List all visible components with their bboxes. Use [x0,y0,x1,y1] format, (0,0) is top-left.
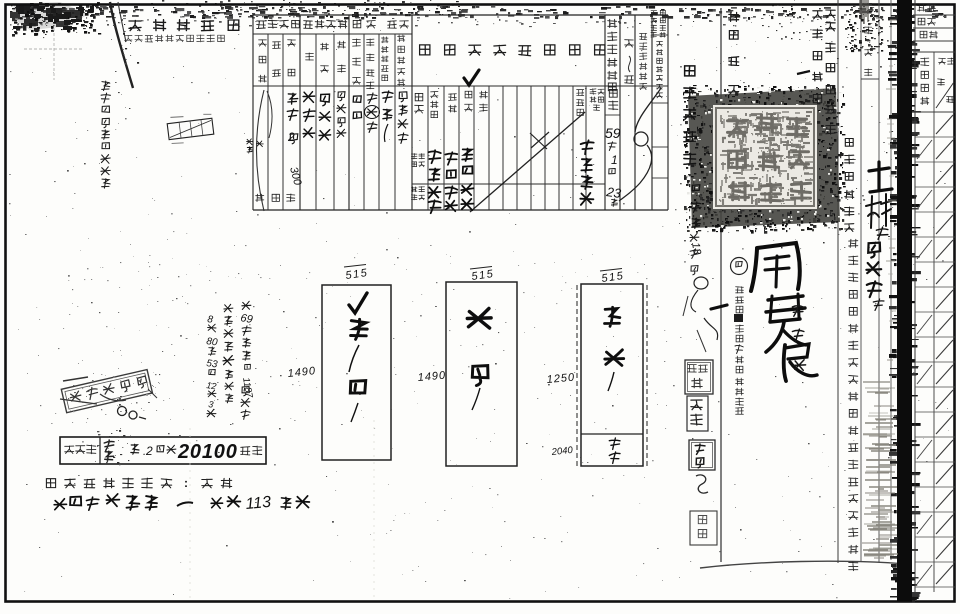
svg-text:1490: 1490 [417,370,446,384]
svg-text:23: 23 [605,184,623,201]
svg-text:53: 53 [206,358,219,371]
svg-text:113: 113 [245,494,272,513]
svg-text::: : [184,476,188,490]
svg-text:2: 2 [145,444,153,458]
svg-text:69: 69 [239,312,253,326]
svg-text:1250: 1250 [546,372,575,386]
svg-text:1: 1 [611,153,618,167]
svg-text:59: 59 [605,125,621,141]
svg-text:20100: 20100 [177,441,238,463]
svg-text:12: 12 [206,380,217,391]
